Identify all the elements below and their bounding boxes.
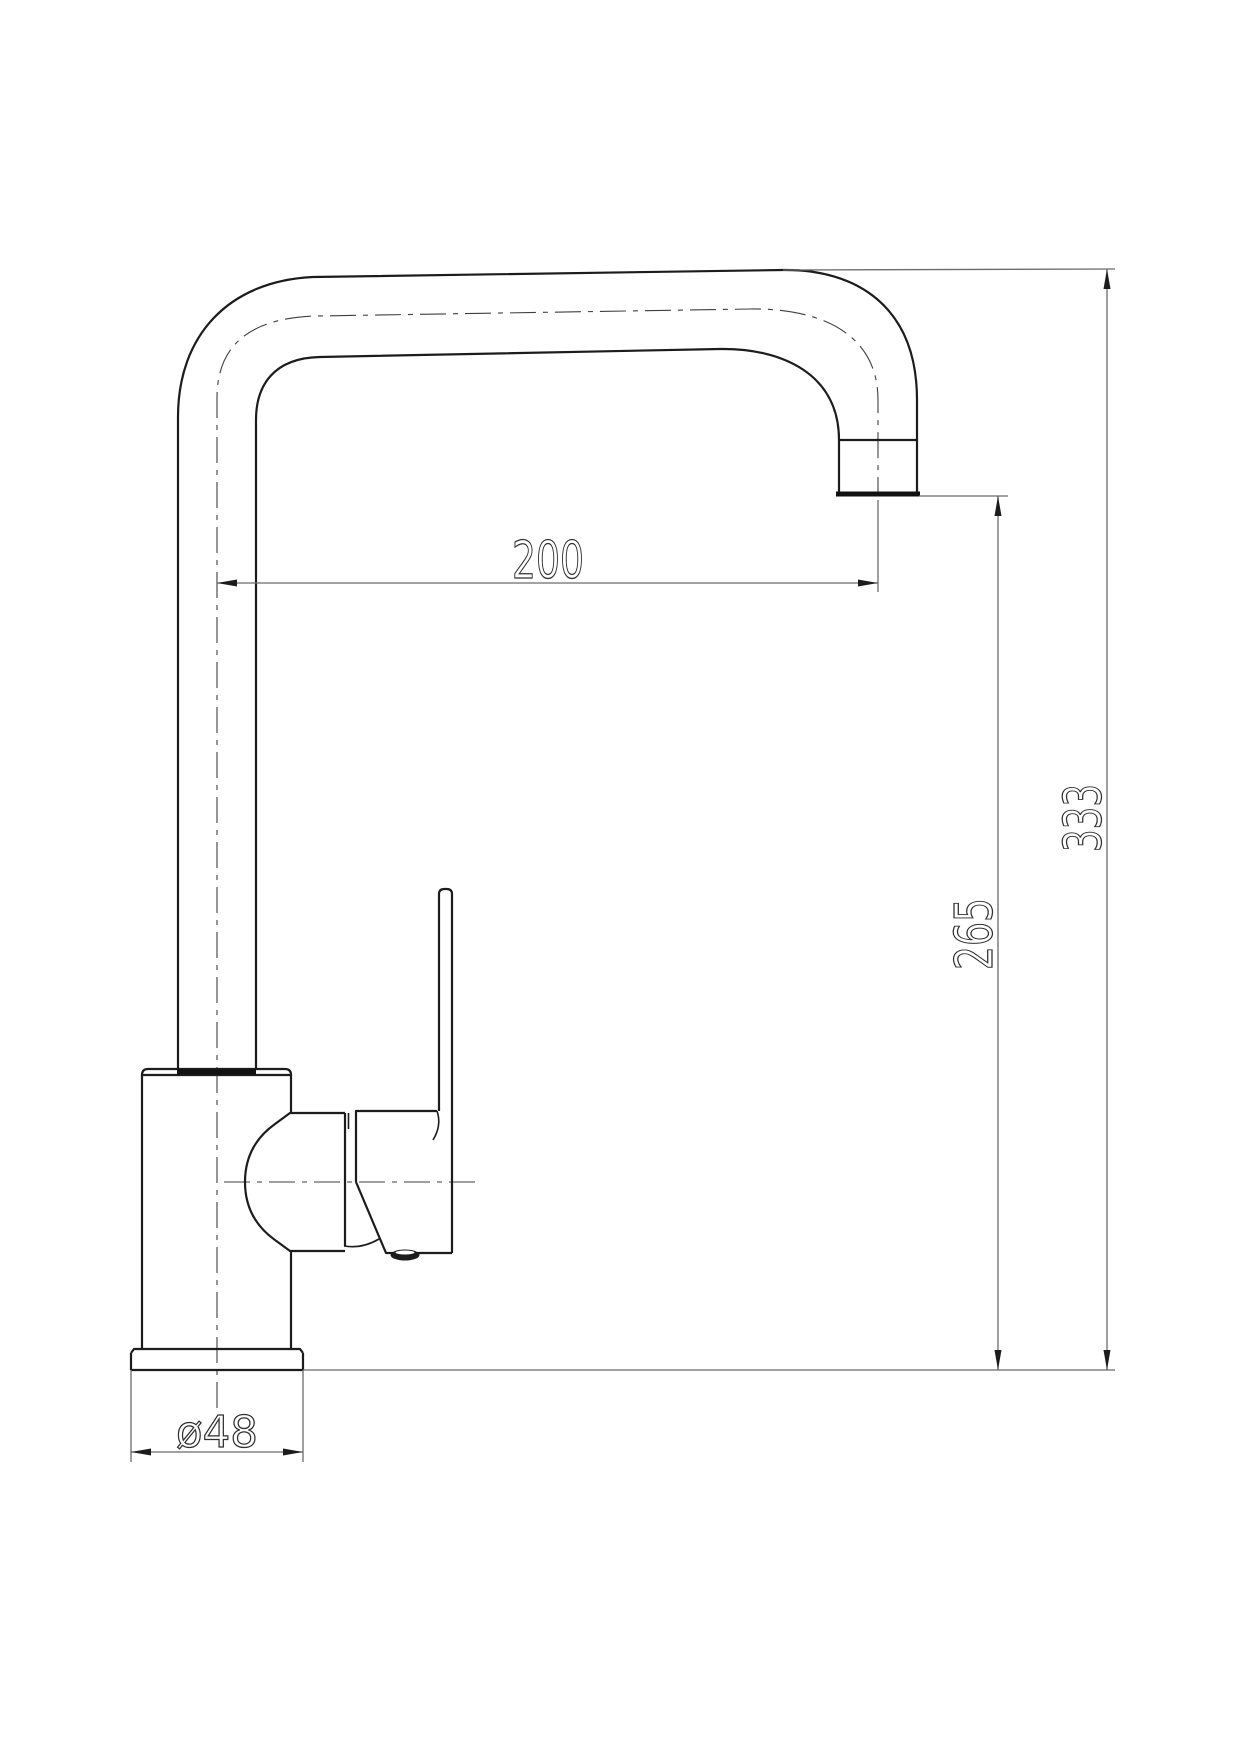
- dimension-333: 333: [1054, 269, 1114, 1370]
- dimension-265-arrow-bottom: [995, 1350, 1002, 1370]
- handle-front-fillet: [433, 1111, 439, 1140]
- dimension-265-label: 265: [945, 898, 1005, 970]
- dimension-48-label: ø48: [176, 1407, 258, 1458]
- spout-inner-edge: [256, 349, 839, 1069]
- dimension-333-arrow-top: [1104, 269, 1111, 289]
- handle-lever: [439, 889, 452, 1253]
- spout-centerline: [217, 309, 878, 1408]
- dimension-200-arrow-right: [858, 580, 878, 587]
- dimension-265: 265: [945, 496, 1005, 1370]
- dimension-diameter-48: ø48: [131, 1407, 303, 1458]
- dimension-48-arrow-right: [283, 1449, 303, 1456]
- cartridge-cone: [245, 1113, 379, 1251]
- dimension-333-label: 333: [1054, 784, 1114, 852]
- dimension-200-arrow-left: [217, 580, 237, 587]
- dimension-48-arrow-left: [131, 1449, 151, 1456]
- dimension-200: 200: [217, 531, 878, 591]
- dimension-265-arrow-top: [995, 496, 1002, 516]
- technical-drawing-page: 200 265 333 ø48: [0, 0, 1241, 1754]
- dimension-333-arrow-bottom: [1104, 1350, 1111, 1370]
- extension-lines: [131, 269, 1115, 1462]
- centerlines: [217, 309, 878, 1408]
- lever-blade: [439, 889, 452, 1253]
- housing-underside-dome-highlight: [396, 1251, 415, 1255]
- spout-outer-edge: [178, 270, 783, 1069]
- top-extension-line: [783, 269, 1115, 270]
- dimension-200-label: 200: [512, 531, 584, 591]
- cone-housing-blend-arc: [344, 1239, 379, 1247]
- faucet-technical-drawing: 200 265 333 ø48: [0, 0, 1241, 1754]
- spout-right-outer-bend: [783, 270, 917, 440]
- spout-outline: [178, 270, 917, 1069]
- housing-top-and-left: [356, 1111, 437, 1182]
- handle-housing: [356, 1111, 452, 1261]
